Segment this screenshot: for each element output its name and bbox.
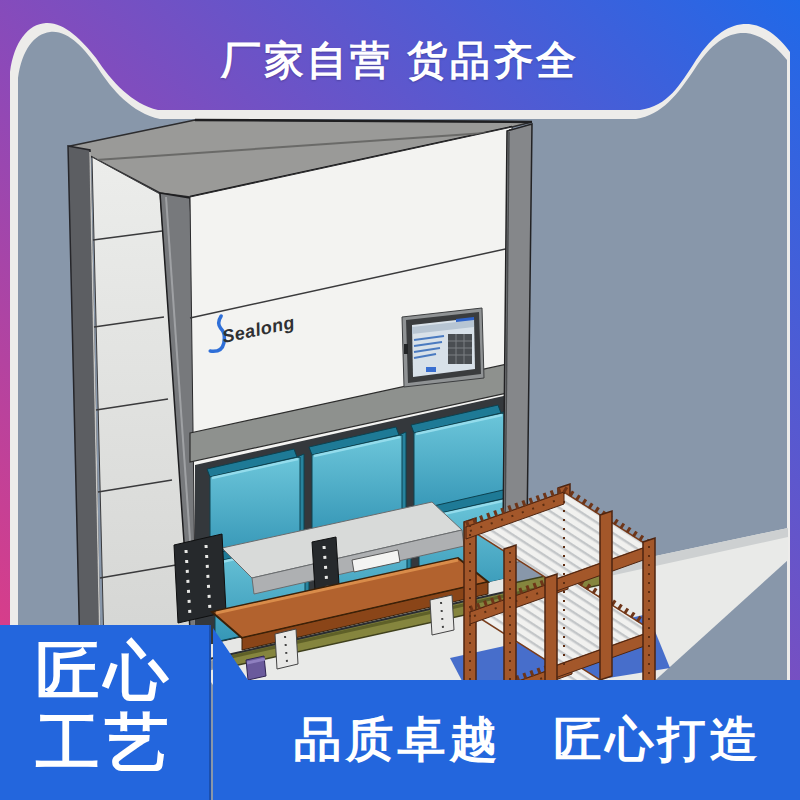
badge-text-line: 工艺 <box>36 707 174 779</box>
top-banner: 厂家自营 货品齐全 <box>20 30 780 90</box>
leg-bracket <box>275 629 298 669</box>
top-banner-text: 厂家自营 货品齐全 <box>221 33 579 88</box>
control-screen <box>402 308 484 387</box>
badge-text-line: 匠心 <box>36 635 174 707</box>
promo-image-frame: Sealong <box>0 0 800 800</box>
leg-bracket <box>430 595 454 635</box>
bottom-banner-text: 品质卓越 匠心打造 <box>294 708 762 772</box>
craft-badge: 匠心 工艺 <box>0 625 211 800</box>
